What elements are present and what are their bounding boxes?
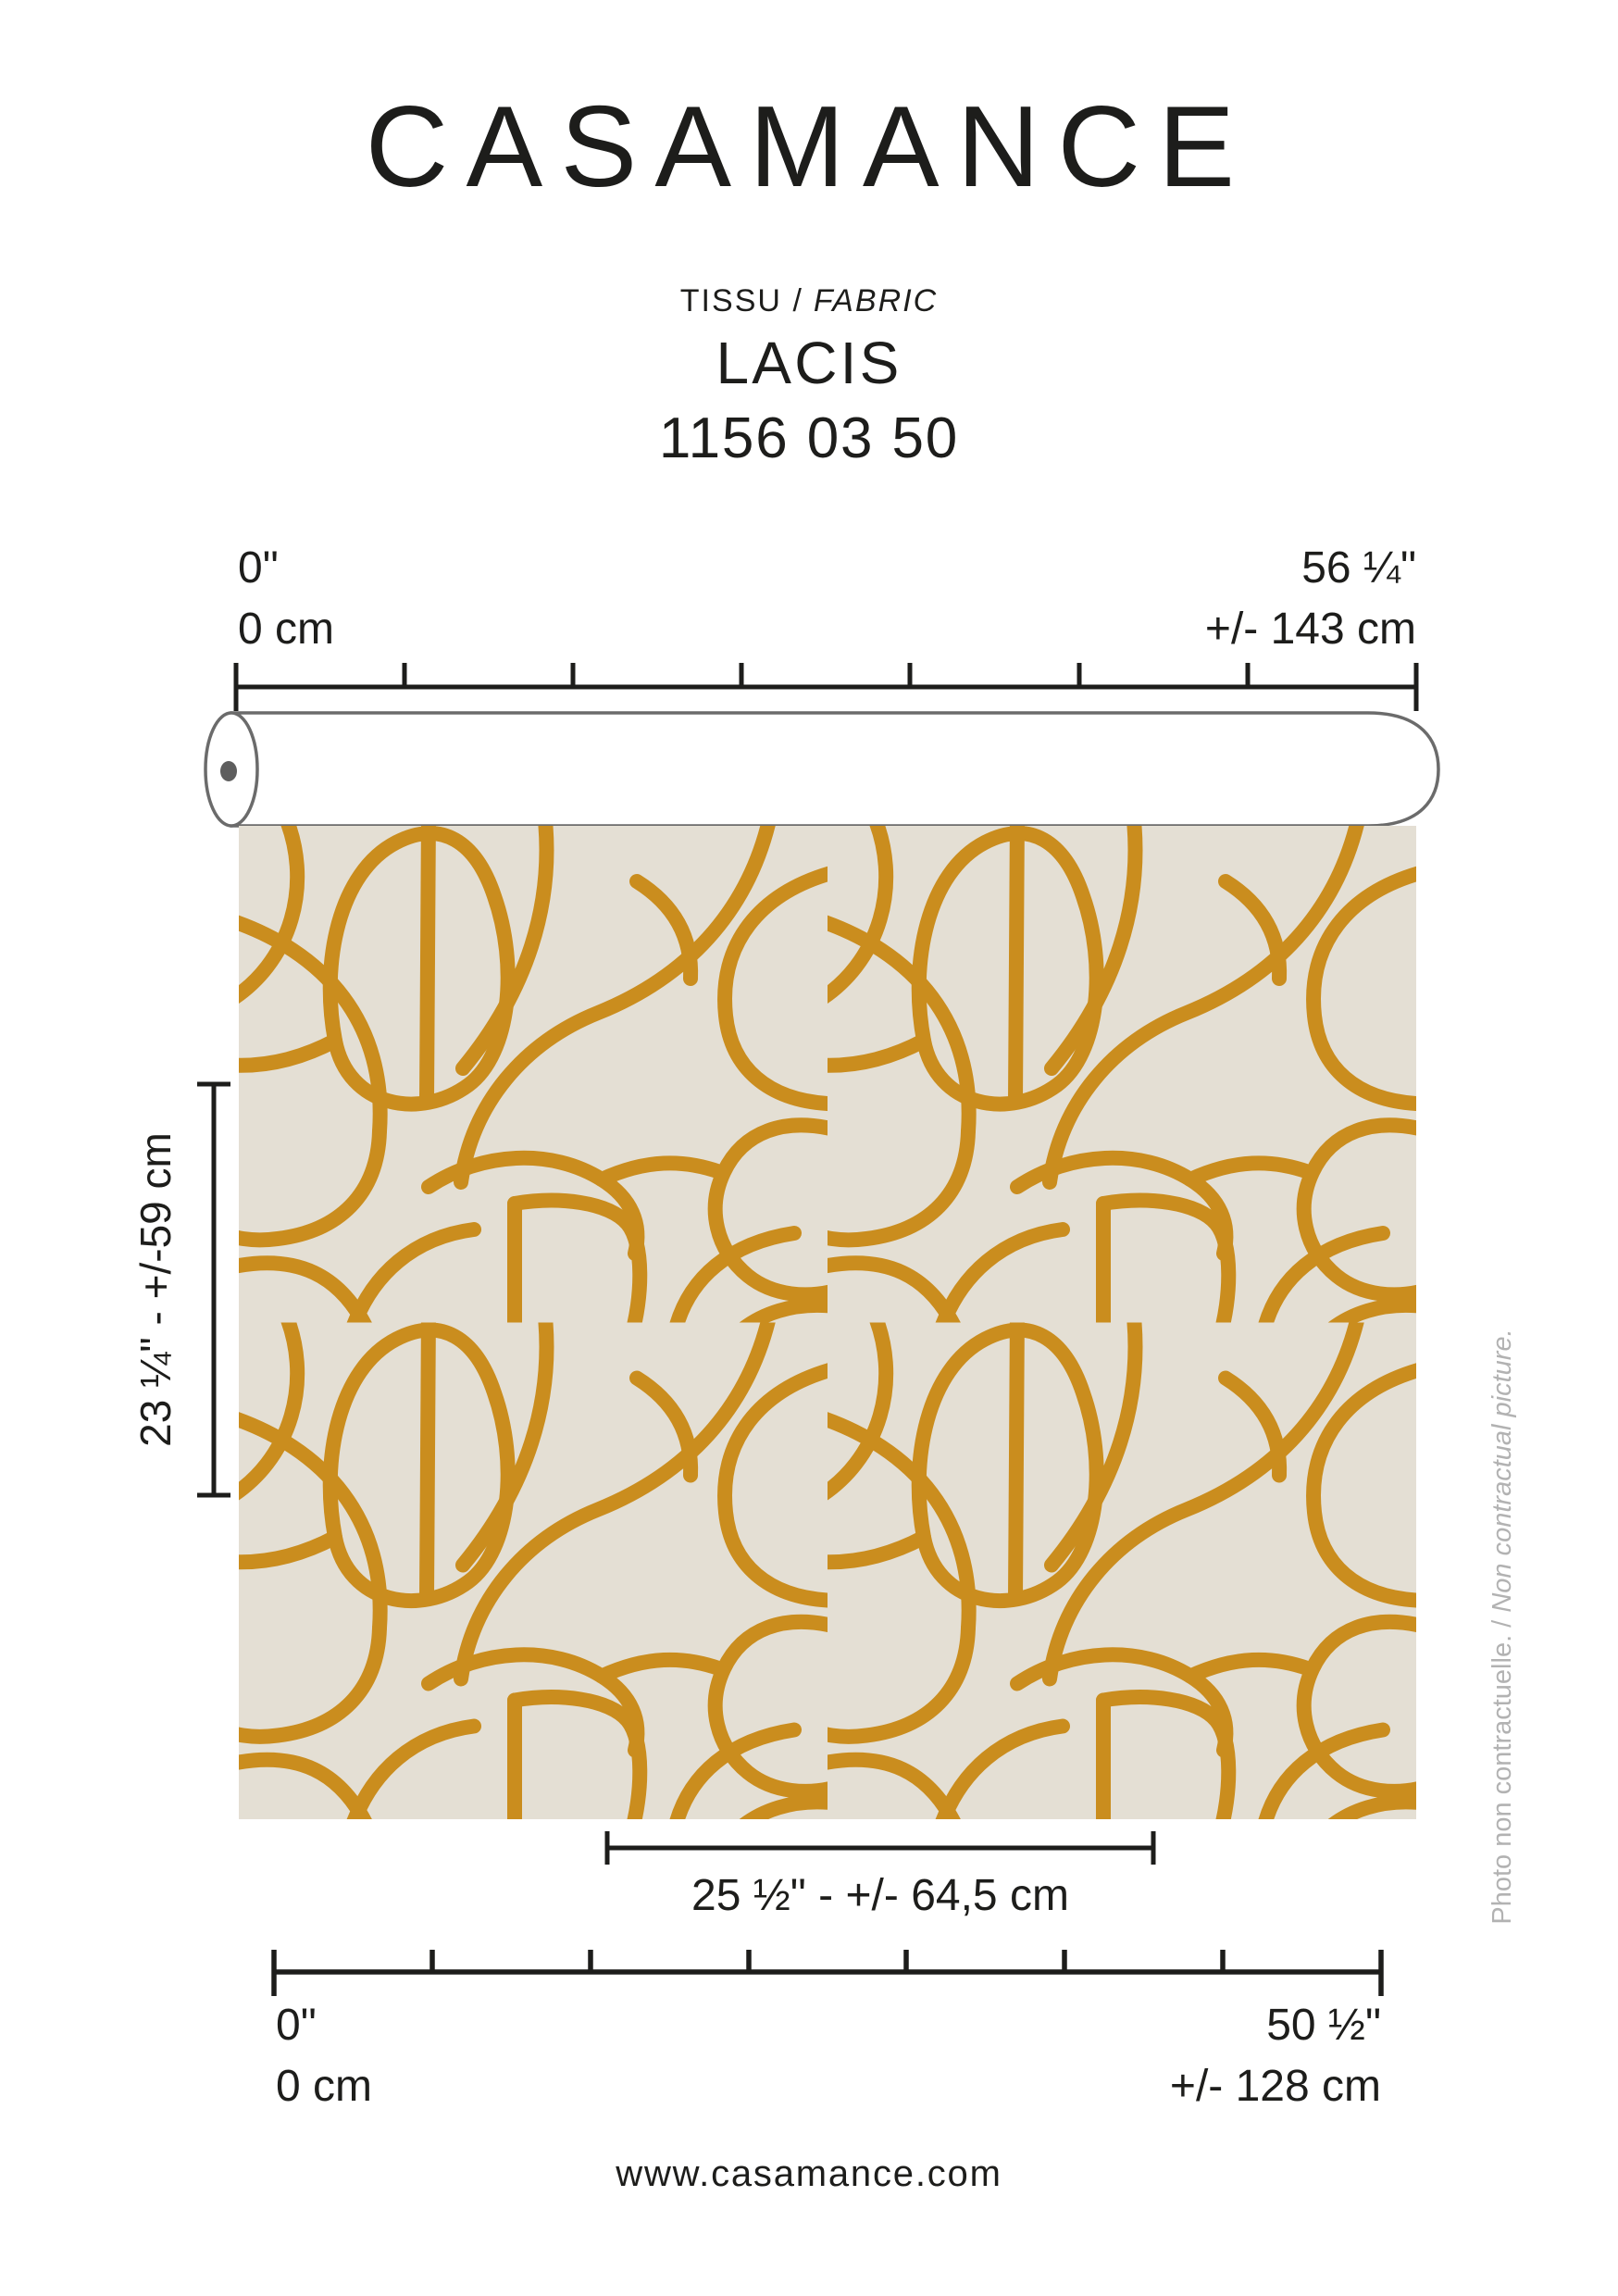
roll-core-dot — [220, 761, 237, 781]
bottom-ruler — [269, 1942, 1386, 2003]
disclaimer-fr: Photo non contractuelle. / — [1487, 1620, 1517, 1925]
top-ruler-start-cm: 0 cm — [238, 605, 334, 655]
vertical-repeat-measure — [192, 1077, 238, 1503]
bottom-ruler-end-inches: 50 ½" — [1266, 2002, 1381, 2051]
top-ruler-start-inches: 0" — [238, 544, 279, 593]
bottom-ruler-start-inches: 0" — [276, 2002, 317, 2051]
website-url: www.casamance.com — [0, 2153, 1618, 2195]
bottom-ruler-marks — [274, 1950, 1381, 1996]
product-type-en: FABRIC — [814, 283, 938, 318]
fabric-roll-illustration — [194, 702, 1453, 841]
disclaimer-note: Photo non contractuelle. /Non contractua… — [1484, 1256, 1521, 1997]
horizontal-repeat-measure — [600, 1826, 1161, 1870]
fabric-swatch — [239, 826, 1416, 1819]
top-ruler-end-cm: +/- 143 cm — [1205, 605, 1416, 655]
product-reference: 1156 03 50 — [0, 406, 1618, 471]
product-type: TISSU /FABRIC — [0, 283, 1618, 319]
brand-logo: CASAMANCE — [0, 81, 1618, 213]
fabric-spec-sheet: CASAMANCE TISSU /FABRIC LACIS 1156 03 50… — [0, 0, 1618, 2296]
disclaimer-en: Non contractual picture. — [1487, 1329, 1517, 1612]
roll-body — [231, 713, 1438, 826]
bottom-ruler-end-cm: +/- 128 cm — [1170, 2063, 1381, 2112]
top-ruler-end-inches: 56 ¼" — [1301, 544, 1416, 593]
product-name: LACIS — [0, 329, 1618, 397]
bottom-ruler-start-cm: 0 cm — [276, 2063, 372, 2112]
vertical-repeat-label: 23 ¼" - +/-59 cm — [130, 919, 181, 1660]
product-type-fr: TISSU / — [680, 283, 803, 318]
fabric-pattern — [239, 826, 1416, 1819]
horizontal-repeat-label: 25 ½" - +/- 64,5 cm — [600, 1870, 1161, 1921]
